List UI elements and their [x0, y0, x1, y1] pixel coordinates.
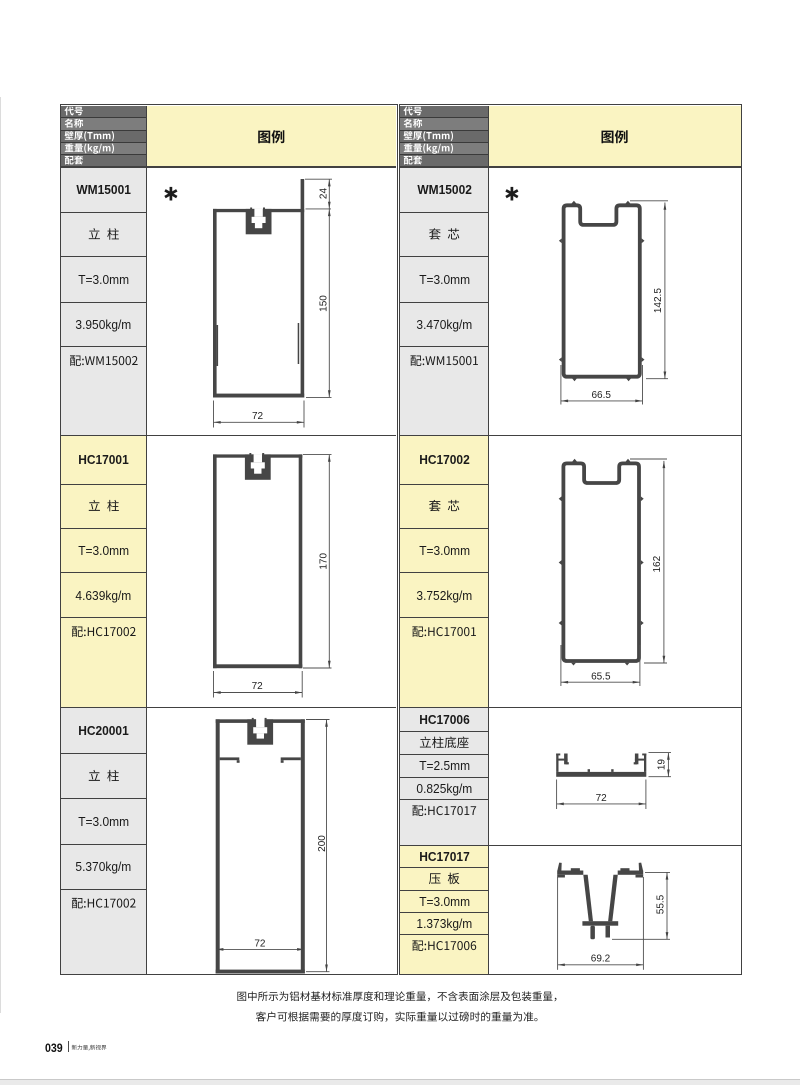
svg-text:170: 170	[318, 553, 329, 570]
svg-text:200: 200	[317, 835, 328, 852]
svg-text:72: 72	[596, 793, 608, 804]
svg-text:72: 72	[252, 411, 264, 422]
svg-text:162: 162	[652, 555, 663, 572]
svg-text:24: 24	[318, 188, 329, 200]
svg-text:150: 150	[318, 295, 329, 312]
svg-text:142.5: 142.5	[653, 288, 664, 313]
svg-text:65.5: 65.5	[591, 671, 611, 682]
svg-text:72: 72	[252, 681, 264, 692]
svg-text:55.5: 55.5	[655, 894, 666, 914]
svg-text:66.5: 66.5	[591, 390, 611, 401]
svg-text:69.2: 69.2	[591, 954, 611, 965]
svg-text:19: 19	[657, 759, 668, 771]
svg-text:72: 72	[254, 938, 266, 949]
